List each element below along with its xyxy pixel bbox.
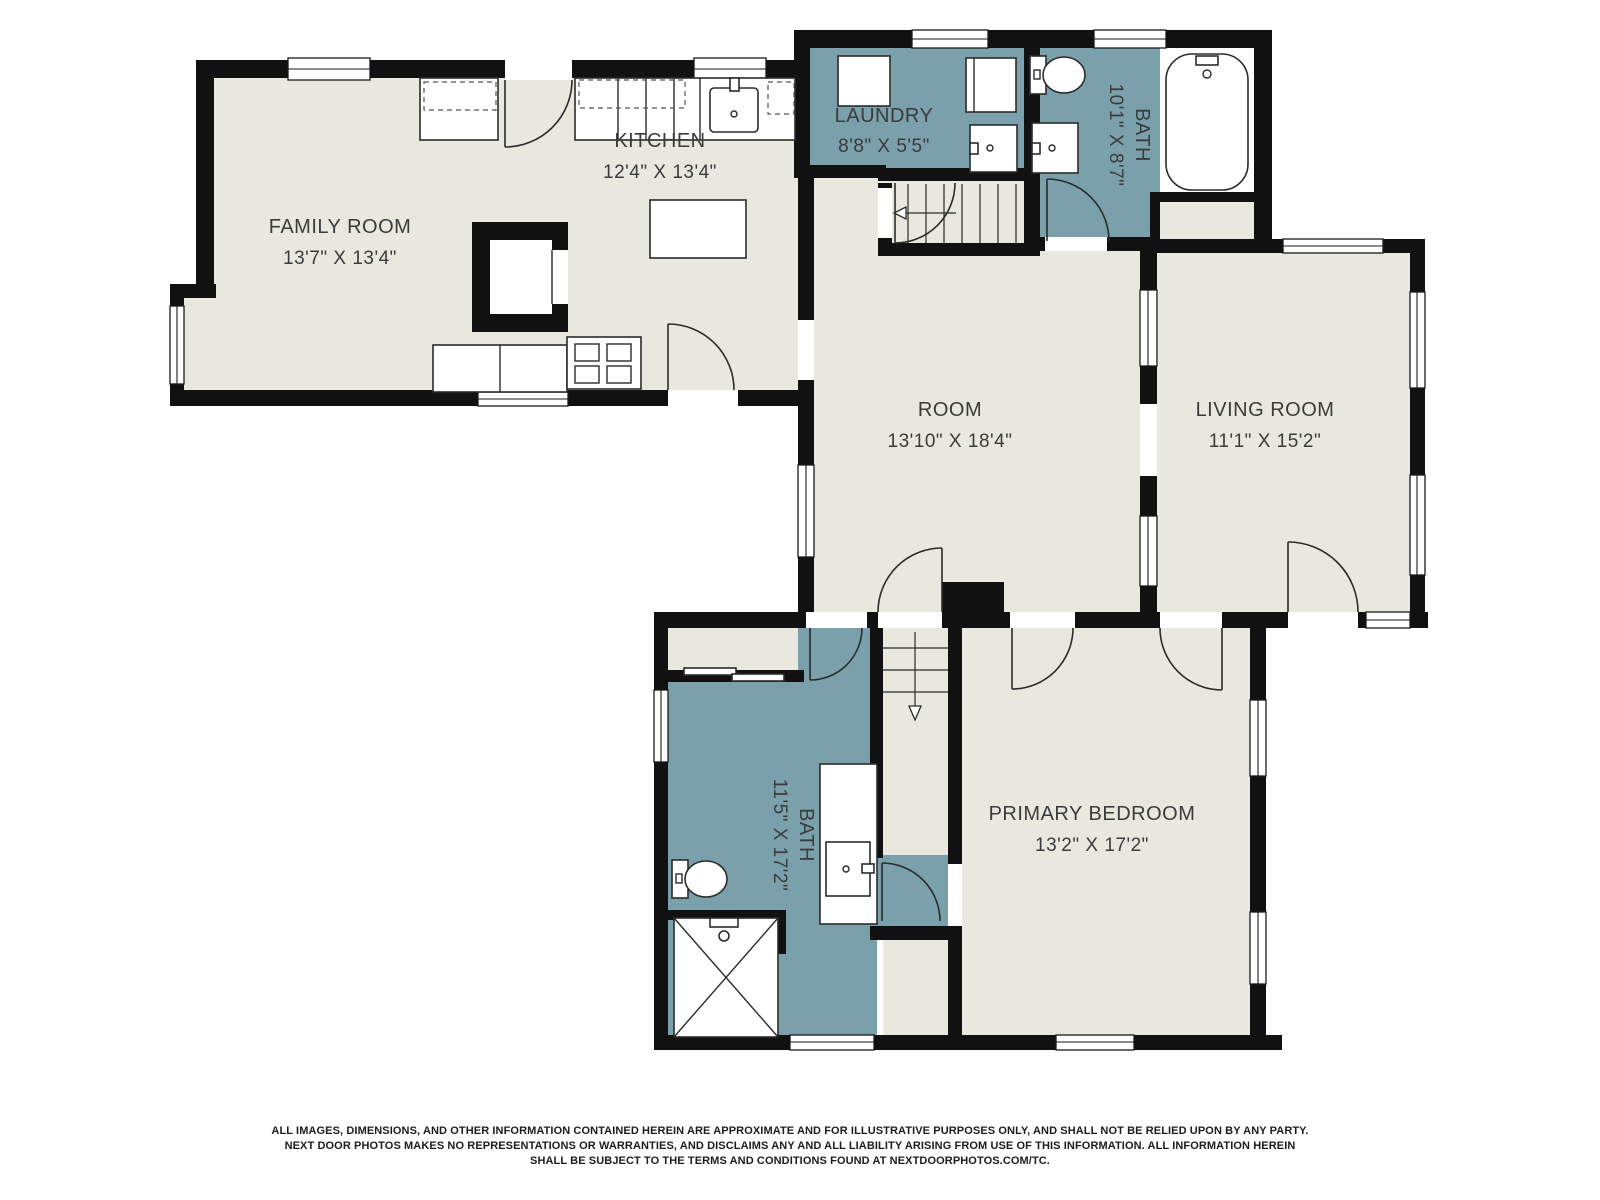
window xyxy=(694,58,766,80)
room-dims: 13'10" X 18'4" xyxy=(888,431,1013,452)
bath-sink xyxy=(1032,123,1078,173)
vanity xyxy=(820,764,877,924)
door-opening xyxy=(1288,612,1358,628)
bathtub xyxy=(1166,54,1248,190)
window xyxy=(1250,912,1266,984)
primary-bedroom-dims: 13'2" X 17'2" xyxy=(1035,835,1149,856)
pass-through-opening xyxy=(798,320,814,380)
door-opening xyxy=(878,612,942,628)
door-opening xyxy=(948,864,962,926)
floor-plan-page: FAMILY ROOM 13'7" X 13'4" KITCHEN 12'4" … xyxy=(0,0,1600,1200)
window xyxy=(1250,700,1266,776)
dryer xyxy=(966,58,1016,112)
room-label: ROOM xyxy=(918,399,982,421)
primary-bedroom-floor xyxy=(956,618,1262,1039)
window xyxy=(478,392,568,406)
window xyxy=(1094,30,1166,48)
window xyxy=(1366,612,1410,628)
toilet xyxy=(1030,56,1085,94)
window xyxy=(654,690,668,762)
door-opening xyxy=(878,183,892,243)
window xyxy=(1056,1035,1134,1050)
disclaimer-line-1: ALL IMAGES, DIMENSIONS, AND OTHER INFORM… xyxy=(0,1124,1580,1139)
upper-bath-dims: 10'1" X 8'7" xyxy=(1105,84,1126,187)
door-opening xyxy=(806,612,867,628)
family-room-dims: 13'7" X 13'4" xyxy=(283,248,397,269)
understair-closet-floor xyxy=(883,938,948,1038)
window xyxy=(1140,516,1157,586)
window xyxy=(170,306,184,384)
family-room-label: FAMILY ROOM xyxy=(269,216,412,238)
door-opening xyxy=(668,390,738,406)
window xyxy=(1283,239,1383,253)
lower-bath-label: BATH xyxy=(795,808,817,862)
window xyxy=(798,465,814,557)
door-opening xyxy=(1045,237,1107,251)
window xyxy=(912,30,988,48)
living-room-dims: 11'1" X 15'2" xyxy=(1209,431,1321,452)
window xyxy=(1140,290,1157,366)
disclaimer-line-3: SHALL BE SUBJECT TO THE TERMS AND CONDIT… xyxy=(0,1154,1580,1169)
window xyxy=(1410,292,1425,388)
toilet xyxy=(672,860,727,898)
upper-bath-label: BATH xyxy=(1131,108,1153,162)
door-opening xyxy=(1160,612,1222,628)
primary-bedroom-label: PRIMARY BEDROOM xyxy=(989,803,1196,825)
door-opening xyxy=(1010,612,1075,628)
refrigerator xyxy=(420,78,498,140)
disclaimer-line-2: NEXT DOOR PHOTOS MAKES NO REPRESENTATION… xyxy=(0,1139,1580,1154)
laundry-label: LAUNDRY xyxy=(835,105,934,127)
kitchen-island xyxy=(650,200,746,258)
washer xyxy=(838,56,890,106)
window xyxy=(1410,475,1425,575)
lower-stair-floor xyxy=(875,618,950,858)
disclaimer: ALL IMAGES, DIMENSIONS, AND OTHER INFORM… xyxy=(0,1124,1580,1169)
laundry-sink xyxy=(970,125,1017,172)
kitchen-dims: 12'4" X 13'4" xyxy=(603,162,717,183)
living-room-label: LIVING ROOM xyxy=(1196,399,1335,421)
stove xyxy=(567,337,641,389)
fireplace xyxy=(472,222,568,332)
upper-closet-floor xyxy=(1158,200,1254,239)
laundry-dims: 8'8" X 5'5" xyxy=(838,136,930,157)
kitchen-label: KITCHEN xyxy=(614,130,705,152)
window xyxy=(288,58,370,80)
floor-plan-svg: FAMILY ROOM 13'7" X 13'4" KITCHEN 12'4" … xyxy=(0,0,1600,1200)
door-opening xyxy=(505,58,572,80)
window xyxy=(790,1035,874,1050)
cased-opening xyxy=(1140,404,1157,476)
lower-bath-dims: 11'5" X 17'2" xyxy=(769,779,790,891)
shower xyxy=(674,918,778,1037)
